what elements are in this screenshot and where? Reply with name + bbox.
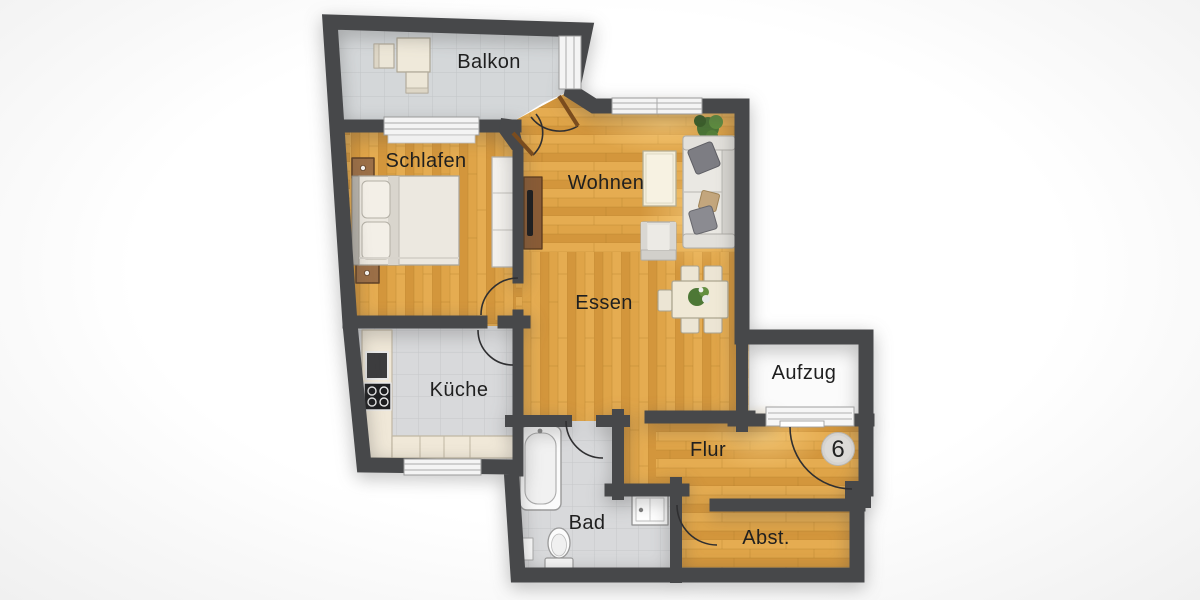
balcony-chair-back — [374, 44, 379, 68]
label-wohnen: Wohnen — [568, 172, 645, 194]
wardrobe — [492, 157, 516, 267]
balcony-chair-back — [406, 88, 428, 93]
label-flur: Flur — [690, 439, 726, 461]
bathtub — [520, 426, 561, 510]
balcony-table — [397, 38, 430, 72]
coffee-table — [643, 151, 676, 206]
label-balkon: Balkon — [457, 51, 521, 73]
window-kueche — [404, 459, 481, 475]
kitchen-counter-bottom — [392, 436, 518, 458]
elevator-door — [766, 407, 854, 427]
label-kueche: Küche — [430, 379, 489, 401]
tv-icon — [527, 190, 533, 236]
dining-chair — [704, 317, 722, 333]
unit-number: 6 — [831, 436, 844, 463]
dining-chair — [681, 317, 699, 333]
wall-step-block — [845, 481, 871, 508]
window-wohnen — [612, 98, 702, 114]
tv-sideboard — [524, 177, 542, 249]
double-bed — [352, 176, 459, 265]
stove — [364, 383, 391, 410]
sofa — [683, 136, 735, 248]
floor-plan-canvas: 6 Balkon Schlafen Wohnen Essen Küche Auf… — [0, 0, 1200, 600]
label-schlafen: Schlafen — [385, 150, 466, 172]
dining-chair — [658, 290, 672, 311]
unit-number-badge: 6 — [822, 433, 855, 466]
floor-plan-page: 6 Balkon Schlafen Wohnen Essen Küche Auf… — [0, 0, 1200, 600]
label-essen: Essen — [575, 292, 633, 314]
label-abstellraum: Abst. — [742, 527, 790, 549]
armchair — [641, 222, 676, 260]
window-balkon-side — [559, 36, 581, 89]
pillow — [362, 181, 390, 218]
window-schlafen — [384, 117, 479, 143]
washbasin — [632, 494, 668, 525]
label-bad: Bad — [569, 512, 606, 534]
dining-chair — [681, 266, 699, 282]
kitchen-sink — [366, 352, 388, 379]
pillow — [362, 222, 390, 259]
bedroom-furniture — [352, 157, 516, 283]
dining-chair — [704, 266, 722, 282]
label-aufzug: Aufzug — [772, 362, 837, 384]
